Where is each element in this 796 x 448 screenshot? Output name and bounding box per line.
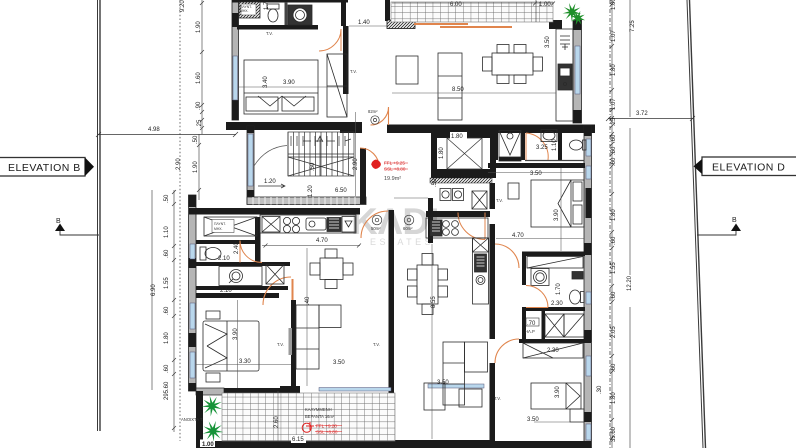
svg-text:8.50: 8.50 xyxy=(452,87,464,93)
svg-text:.60: .60 xyxy=(611,157,617,166)
svg-text:ELEVATION B: ELEVATION B xyxy=(8,162,81,174)
svg-text:T.V.: T.V. xyxy=(373,342,380,347)
svg-text:82m²: 82m² xyxy=(368,109,378,114)
svg-text:.50: .50 xyxy=(164,194,170,203)
svg-text:35.60: 35.60 xyxy=(611,426,617,442)
svg-text:1.40: 1.40 xyxy=(358,20,370,26)
svg-text:60m²: 60m² xyxy=(403,226,413,231)
svg-text:B: B xyxy=(732,217,737,224)
svg-text:.40: .40 xyxy=(305,296,311,305)
svg-text:ΚΑΛΥΜΜΕΝΗ: ΚΑΛΥΜΜΕΝΗ xyxy=(305,407,332,412)
svg-text:1.60: 1.60 xyxy=(196,72,202,84)
svg-text:FFL +9.20: FFL +9.20 xyxy=(316,424,337,429)
svg-text:3.40: 3.40 xyxy=(263,76,269,88)
svg-text:.60: .60 xyxy=(611,134,617,143)
svg-text:T.V.: T.V. xyxy=(277,342,284,347)
svg-text:1.10: 1.10 xyxy=(552,139,558,151)
svg-text:2.90: 2.90 xyxy=(176,158,182,170)
svg-text:6.00: 6.00 xyxy=(450,2,462,8)
svg-text:3.25: 3.25 xyxy=(536,145,548,151)
svg-text:3.90: 3.90 xyxy=(555,386,561,398)
svg-text:T.V.: T.V. xyxy=(494,396,501,401)
svg-text:6.90: 6.90 xyxy=(151,284,157,296)
svg-text:3.30: 3.30 xyxy=(239,359,251,365)
svg-text:1.80: 1.80 xyxy=(611,392,617,404)
svg-text:.25: .25 xyxy=(197,119,203,128)
svg-text:2.30: 2.30 xyxy=(547,348,559,354)
svg-text:.30: .30 xyxy=(597,385,603,394)
svg-text:.50: .50 xyxy=(611,146,617,155)
svg-text:1.10: 1.10 xyxy=(164,226,170,238)
svg-text:1.80: 1.80 xyxy=(451,134,463,140)
svg-text:4.98: 4.98 xyxy=(148,127,160,133)
svg-text:1.70: 1.70 xyxy=(264,0,270,10)
svg-text:1.55: 1.55 xyxy=(611,262,617,274)
svg-text:3.50: 3.50 xyxy=(545,36,551,48)
svg-text:ΑΝΟΙΧΤΑ Τ.: ΑΝΟΙΧΤΑ Τ. xyxy=(181,417,203,422)
svg-text:.60: .60 xyxy=(164,249,170,258)
svg-text:.60: .60 xyxy=(164,364,170,373)
svg-text:.50: .50 xyxy=(432,178,438,187)
svg-text:1.07: 1.07 xyxy=(611,30,617,42)
svg-text:1.80: 1.80 xyxy=(611,209,617,221)
svg-text:ΗΛ.Ρ: ΗΛ.Ρ xyxy=(525,329,535,334)
svg-text:1.00: 1.00 xyxy=(539,2,551,8)
svg-text:.70: .70 xyxy=(527,321,536,327)
svg-text:ΠΛΥΝΤ.: ΠΛΥΝΤ. xyxy=(214,222,226,226)
svg-text:7.25: 7.25 xyxy=(630,20,636,32)
svg-text:1.80: 1.80 xyxy=(164,332,170,344)
svg-text:1.20: 1.20 xyxy=(308,185,314,197)
svg-text:3.90: 3.90 xyxy=(233,328,239,340)
svg-text:3.72: 3.72 xyxy=(636,111,648,117)
svg-text:1.55: 1.55 xyxy=(164,277,170,289)
svg-text:3.50: 3.50 xyxy=(437,380,449,386)
svg-text:3.90: 3.90 xyxy=(283,80,295,86)
svg-text:ELEVATION D: ELEVATION D xyxy=(712,162,785,174)
svg-text:T.V.: T.V. xyxy=(496,198,503,203)
svg-text:1.70: 1.70 xyxy=(556,283,562,295)
svg-text:3.90: 3.90 xyxy=(554,209,560,221)
svg-text:9.20: 9.20 xyxy=(180,0,186,12)
svg-text:3.50: 3.50 xyxy=(530,171,542,177)
svg-text:1.00: 1.00 xyxy=(202,442,214,448)
svg-text:1.90: 1.90 xyxy=(196,21,202,33)
svg-text:19.9m²: 19.9m² xyxy=(384,176,401,182)
svg-text:SSL +8.80: SSL +8.80 xyxy=(316,430,338,435)
svg-text:6.50: 6.50 xyxy=(335,188,347,194)
svg-text:3.50: 3.50 xyxy=(333,360,345,366)
svg-text:.60: .60 xyxy=(164,306,170,315)
svg-text:.60: .60 xyxy=(611,363,617,372)
svg-text:2.10: 2.10 xyxy=(218,256,230,262)
svg-text:.60: .60 xyxy=(611,291,617,300)
svg-text:.50: .50 xyxy=(193,135,199,144)
svg-text:1.80: 1.80 xyxy=(611,64,617,76)
svg-text:1.20: 1.20 xyxy=(264,179,276,185)
svg-text:2.90: 2.90 xyxy=(353,158,359,170)
svg-text:T.V.: T.V. xyxy=(266,31,273,36)
svg-text:ΜΗΧ.: ΜΗΧ. xyxy=(240,9,249,13)
svg-text:1.07: 1.07 xyxy=(611,98,617,110)
svg-text:ESTATES: ESTATES xyxy=(370,237,434,247)
svg-text:4.70: 4.70 xyxy=(512,233,524,239)
svg-text:8.55: 8.55 xyxy=(431,296,437,308)
svg-text:295.60: 295.60 xyxy=(164,381,170,400)
svg-text:1.00: 1.00 xyxy=(611,0,617,10)
svg-text:.50: .50 xyxy=(310,162,316,171)
svg-text:.90: .90 xyxy=(196,101,202,110)
svg-text:2.30: 2.30 xyxy=(551,301,563,307)
svg-text:12.20: 12.20 xyxy=(627,275,633,291)
svg-text:3.50: 3.50 xyxy=(527,417,539,423)
svg-text:1.90: 1.90 xyxy=(193,161,199,173)
svg-text:2.10: 2.10 xyxy=(220,288,232,294)
svg-text:.60: .60 xyxy=(611,236,617,245)
svg-text:2.40: 2.40 xyxy=(234,242,240,254)
svg-text:2.05: 2.05 xyxy=(611,326,617,338)
svg-text:T.V.: T.V. xyxy=(350,69,357,74)
svg-text:6.15: 6.15 xyxy=(292,437,304,443)
svg-text:4.70: 4.70 xyxy=(316,238,328,244)
svg-text:ΒΕΡΑΝΤΑ 16m²: ΒΕΡΑΝΤΑ 16m² xyxy=(305,414,335,419)
svg-text:2.60: 2.60 xyxy=(274,416,280,428)
svg-text:1.80: 1.80 xyxy=(439,147,445,159)
svg-text:50m²: 50m² xyxy=(371,226,381,231)
svg-text:ΜΗΧ.: ΜΗΧ. xyxy=(214,227,223,231)
svg-text:.25: .25 xyxy=(611,117,617,126)
